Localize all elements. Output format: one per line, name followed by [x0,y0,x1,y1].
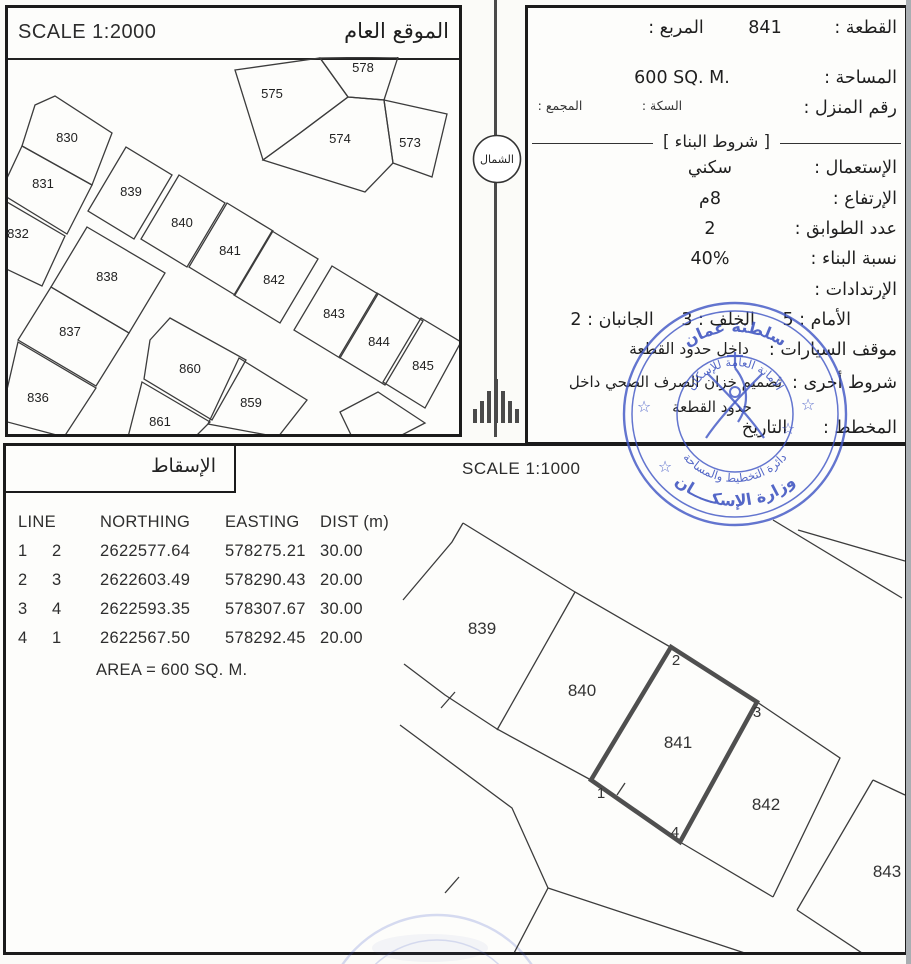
table-cell: 3 [52,571,100,590]
projection-panel: الإسقاط SCALE 1:1000 LINENORTHINGEASTING… [3,443,908,955]
detail-map-scale-label: SCALE 1:1000 [462,459,580,479]
north-bars [473,379,519,423]
floors-label: عدد الطوابق : [795,219,897,239]
projection-title: الإسقاط [151,455,216,477]
site-plan-header: SCALE 1:2000 الموقع العام [8,8,459,60]
table-row: 412622567.50578292.4520.00 [18,624,410,653]
use-label: الإستعمال : [814,158,897,178]
other-conditions-label: شروط أخرى : [792,373,897,393]
house-number-label: رقم المنزل : [804,98,897,118]
building-conditions-title: [ شروط البناء ] [653,132,780,151]
row-height: الإرتفاع : 8م [536,189,897,213]
table-row: 122622577.64578275.2130.00 [18,537,410,566]
table-header: LINE [18,513,100,532]
table-cell: 578275.21 [225,542,320,561]
row-area: المساحة : 600 SQ. M. [536,68,897,92]
site-plan-scale-label: SCALE 1:2000 [18,21,156,44]
area-label: المساحة : [824,68,897,88]
plot-label: القطعة : [834,18,897,38]
coordinate-table: LINENORTHINGEASTINGDIST (m) 122622577.64… [18,508,410,680]
table-cell: 1 [18,542,52,561]
table-cell: 578307.67 [225,600,320,619]
table-cell: 2 [18,571,52,590]
table-cell: 30.00 [320,542,390,561]
plan-label: المخطط : [823,418,897,438]
complex-label: المجمع : [528,98,592,113]
table-cell: 2622567.50 [100,629,225,648]
table-cell: 578290.43 [225,571,320,590]
front-setback: الأمام : 5 [782,310,851,330]
plot-value: 841 [735,18,795,38]
north-divider: الشمال [473,0,521,437]
height-value: 8م [665,189,755,209]
street-label: السكة : [632,98,692,113]
row-other-conditions: شروط أخرى : تصميم خزان الصرف الصحي داخل [536,373,897,397]
parking-label: موقف السيارات : [769,340,897,360]
table-cell: 30.00 [320,600,390,619]
site-plan-panel: SCALE 1:2000 الموقع العام [5,5,462,437]
row-plot-number: القطعة : 841 المربع : [536,18,897,42]
table-cell: 20.00 [320,571,390,590]
table-cell: 4 [18,629,52,648]
area-note: AREA = 600 SQ. M. [96,661,410,680]
table-row: 342622593.35578307.6730.00 [18,595,410,624]
table-cell: 20.00 [320,629,390,648]
table-cell: 1 [52,629,100,648]
date-label: التاريخ [737,418,792,438]
table-cell: 2622593.35 [100,600,225,619]
projection-header-box: الإسقاط [6,446,236,493]
building-conditions-header: [ شروط البناء ] [532,132,901,154]
table-cell: 2622577.64 [100,542,225,561]
row-setback-values: الأمام : 5 الخلف : 3 الجانبان : 2 [536,310,897,334]
scan-edge [906,0,911,964]
table-header: NORTHING [100,513,225,532]
floors-value: 2 [665,219,755,239]
table-cell: 3 [18,600,52,619]
row-build-ratio: نسبة البناء : 40% [536,249,897,273]
block-label: المربع : [640,18,712,38]
setbacks-label: الإرتدادات : [814,280,897,300]
area-value: 600 SQ. M. [617,68,747,88]
coord-table-head: LINENORTHINGEASTINGDIST (m) [18,508,410,537]
north-label: الشمال [480,153,514,166]
ratio-label: نسبة البناء : [811,249,897,269]
north-circle [474,136,521,183]
row-setbacks: الإرتدادات : [536,280,897,304]
site-plan-title: الموقع العام [344,19,449,43]
table-cell: 2622603.49 [100,571,225,590]
use-value: سكني [665,158,755,178]
row-house-number: رقم المنزل : السكة : المجمع : [536,98,897,122]
sides-setback: الجانبان : 2 [570,310,653,330]
table-row: 232622603.49578290.4320.00 [18,566,410,595]
table-cell: 4 [52,600,100,619]
other-conditions-value-2: حدود القطعة [672,398,752,416]
plot-info-panel: القطعة : 841 المربع : المساحة : 600 SQ. … [525,5,908,445]
height-label: الإرتفاع : [833,189,897,209]
row-plan-date: المخطط : التاريخ [536,418,897,442]
table-header: EASTING [225,513,320,532]
krooki-document: SCALE 1:2000 الموقع العام القطعة : 841 ا… [0,0,911,964]
coord-table-body: 122622577.64578275.2130.00232622603.4957… [18,537,410,653]
row-floors: عدد الطوابق : 2 [536,219,897,243]
table-header: DIST (m) [320,513,410,532]
row-use: الإستعمال : سكني [536,158,897,182]
parking-value: داخل حدود القطعة [609,340,769,358]
table-cell: 578292.45 [225,629,320,648]
back-setback: الخلف : 3 [681,310,755,330]
table-cell: 2 [52,542,100,561]
ratio-value: 40% [665,249,755,269]
row-parking: موقف السيارات : داخل حدود القطعة [536,340,897,364]
other-conditions-value: تصميم خزان الصرف الصحي داخل [572,373,782,391]
